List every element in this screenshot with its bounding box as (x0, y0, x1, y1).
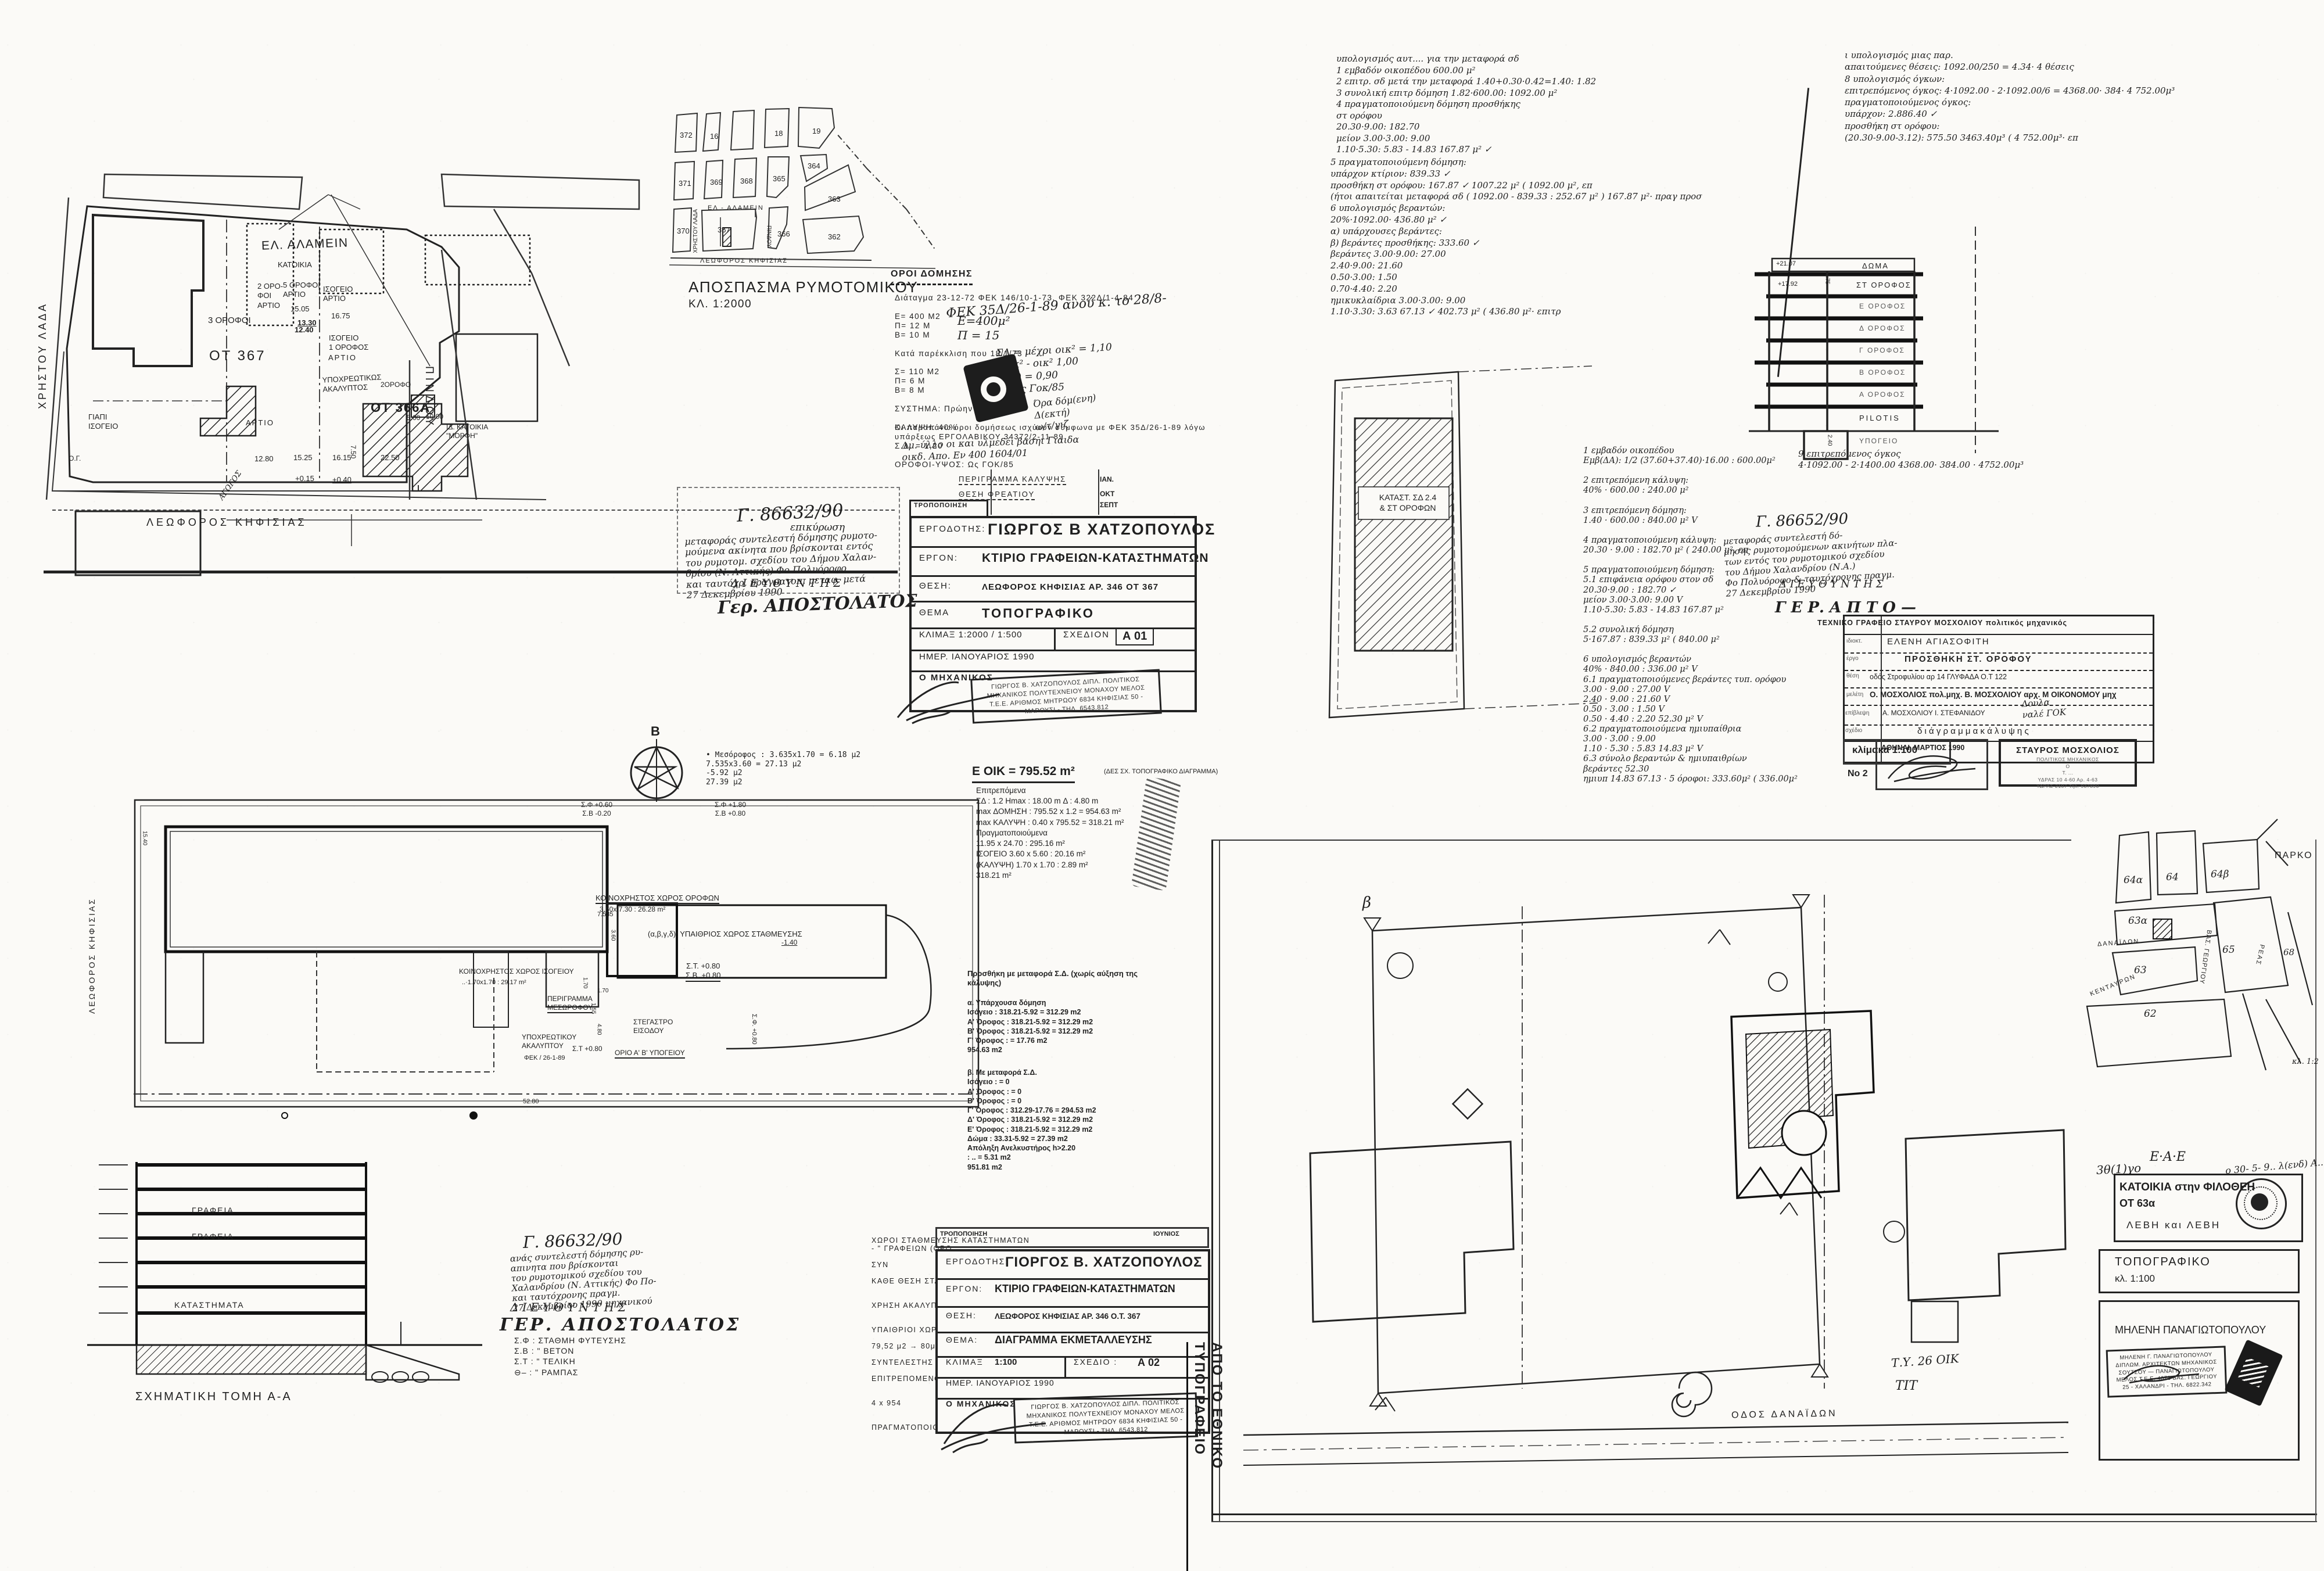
mos-table-r1: ΤΕΧΝΙΚΟ ΓΡΑΦΕΙΟ ΣΤΑΥΡΟΥ ΜΟΣΧΟΛΙΟΥ πολιτι… (1817, 619, 2067, 628)
a02-dim7535: 7.535 (597, 911, 614, 919)
a02-ergon-value: ΚΤΙΡΙΟ ΓΡΑΦΕΙΩΝ-ΚΑΤΑΣΤΗΜΑΤΩΝ (995, 1282, 1175, 1296)
keymap-62: 62 (2144, 1008, 2157, 1020)
a02-dim170b: 1.70 (597, 988, 608, 995)
permit-ref-mos: Γ. 86652/90 (1755, 510, 1848, 532)
street-el-alamein-label: ΕΛ. ΑΛΑΜΕΙΝ (261, 235, 349, 253)
elev-basement: ΥΠΟΓΕΙΟ (1859, 437, 1898, 446)
a02-sf3: Σ.Φ. +0.80 (749, 1014, 758, 1045)
mos-signature (1882, 752, 1981, 784)
rymo-street-kifisias: ΛΕΩΦΟΡΟΣ ΚΗΦΙΣΙΑΣ (700, 257, 788, 266)
mini-r3: ΤΡΟΠΟΠΟΙΗΣΗ (914, 502, 967, 510)
filothei-note-tit: ΤΙΤ (1895, 1378, 1917, 1394)
a02-street-left-label: ΛΕΩΦΟΡΟΣ ΚΗΦΙΣΙΑΣ (87, 898, 98, 1014)
a01-sxedion-label: ΣΧΕΔΙΟΝ (1063, 630, 1110, 641)
filothei-plan-drawing (1220, 842, 2092, 1522)
official-seal-core (2251, 1193, 2268, 1211)
elev-h-240: 2.40 (1826, 435, 1833, 446)
mos-table-r3: ΠΡΟΣΘΗΚΗ ΣΤ. ΟΡΟΦΟΥ (1905, 654, 2032, 665)
rymo-street-alamein: ΕΛ - ΑΛΑΜΕΙΝ (708, 205, 764, 213)
mos-table-k5: μελέτη (1846, 691, 1863, 699)
elev-f4: Δ ΟΡΟΦΟΣ (1859, 324, 1906, 333)
a01-thesi-value: ΛΕΩΦΟΡΟΣ ΚΗΦΙΣΙΑΣ ΑΡ. 346 ΟΤ 367 (982, 582, 1159, 593)
bldg-isogeio-1orofos-label: ΙΣΟΓΕΙΟ 1 ΟΡΟΦΟΣ (329, 333, 368, 353)
street-ladas-label: ΧΡΗΣΤΟΥ ΛΑΔΑ (36, 302, 49, 409)
rymo-scale: ΚΛ. 1:2000 (688, 297, 752, 311)
permit-frame-a01 (677, 487, 900, 594)
permit-role-a02: Δ Ι Ε Υ Θ Υ Ν Τ Η Σ (510, 1300, 626, 1315)
a02-perigramma: ΠΕΡΙΓΡΑΜΜΑ ΜΕΣΩΡΟΦΟΥ (547, 995, 593, 1013)
rymo-372: 372 (680, 131, 693, 140)
elev-mark-1792: +17.92 (1778, 281, 1798, 289)
a02-thesi-label: ΘΕΣΗ: (946, 1311, 977, 1321)
elev-h-275: 2.75 (1823, 273, 1831, 284)
eoik-block4: β. Με μεταφορά Σ.Δ. Ισόγειο : = 0 Α' Όρο… (967, 1068, 1096, 1172)
a02-mini-d1: ΙΟΥΝΙΟΣ (1153, 1231, 1179, 1239)
mos-table-r5: Ο. ΜΟΣΧΟΛΙΟΣ πολ.μηχ. Β. ΜΟΣΧΟΛΙΟΥ αρχ. … (1870, 690, 2117, 700)
a02-dim170a: 1.70 (581, 977, 589, 988)
eoik-heading: Ε ΟΙΚ = 795.52 m² (972, 764, 1075, 783)
keymap-68: 68 (2283, 947, 2294, 958)
oroi-title: ΟΡΟΙ ΔΟΜΗΣΗΣ (891, 268, 973, 285)
mesorofos-note: • Μεσόροφος : 3.635x1.70 = 6.18 μ2 7.535… (706, 751, 860, 787)
mos-table-hw6: Δουλα ναλέ ΓΟΚ (2021, 695, 2067, 720)
a02-orio: ΟΡΙΟ Α' Β' ΥΠΟΓΕΙΟΥ (615, 1049, 685, 1059)
moscholios-stamp-name: ΣΤΑΥΡΟΣ ΜΟΣΧΟΛΙΟΣ (2007, 745, 2129, 756)
a02-dim360: 3.60 (609, 930, 616, 941)
rymo-street-pindou: ΠΙΝΔΟΥ (765, 225, 772, 248)
bldg-giapi-label: ΓΙΑΠΙ ΙΣΟΓΕΙΟ (88, 413, 118, 432)
a01-thesi-label: ΘΕΣΗ: (919, 581, 952, 592)
a02-sxedio-value: Α 02 (1138, 1356, 1160, 1369)
oroi-hw-e400: Ε=400μ² Π = 15 (957, 314, 1010, 343)
a02-sf2: Σ.Φ +1.80 Σ.Β +0.80 (715, 801, 746, 818)
dim-750: 7.50 (349, 445, 357, 458)
og-label: Ο.Γ. (69, 454, 81, 463)
a02-section-drawing (87, 1147, 482, 1397)
rymo-364: 364 (808, 162, 820, 171)
compass-rose (621, 733, 690, 803)
rymo-16: 16 (710, 132, 718, 141)
fil-drawing-type: ΤΟΠΟΓΡΑΦΙΚΟ (2115, 1255, 2211, 1269)
elev-f3: Γ ΟΡΟΦΟΣ (1859, 346, 1905, 355)
rymo-368: 368 (740, 177, 753, 186)
fil-title: ΚΑΤΟΙΚΙΑ στην ΦΙΛΟΘΕΗ (2119, 1181, 2255, 1195)
dim-1675: 16.75 (331, 311, 350, 321)
bldg-2orofo-label: 2ΟΡΟΦΟ (381, 381, 411, 389)
rymo-19: 19 (812, 127, 820, 136)
oroi-hw-ora: Όρα δόμ(ενη) Δ(εκτή) ω/τ/γιζ (1032, 392, 1099, 433)
mini-d1: ΙΑΝ. (1100, 475, 1114, 484)
mos-calc-top2: 5 πραγματοποιούμενη δόμηση: υπάρχον κτίρ… (1330, 157, 1702, 318)
keymap-64b: 64β (2211, 869, 2229, 881)
section-floor-grafeia1: ΓΡΑΦΕΙΑ (192, 1206, 234, 1216)
a02-ergodotis-value: ΓΙΟΡΓΟΣ Β. ΧΑΤΖΟΠΟΥΛΟΣ (1005, 1254, 1203, 1271)
lvl-040: +0.40 (332, 475, 352, 485)
keymap-65: 65 (2222, 944, 2235, 956)
a02-signature (938, 1391, 1049, 1455)
mos-table-k7: σχέδιο (1845, 727, 1862, 735)
rymo-366: 366 (777, 229, 790, 239)
dim-500: 5.00 (407, 414, 420, 422)
bldg-2orofoi-label: 2 ΟΡΟ- ΦΟΙ ΑΡΤΙΟ (257, 282, 283, 310)
a02-st080: Σ.Τ +0.80 (572, 1045, 602, 1053)
a02-klimax-value: 1:100 (995, 1357, 1017, 1368)
rymo-367: 367 (718, 225, 730, 235)
filothei-street-label: ΟΔΟΣ ΔΑΝΑΪΔΩΝ (1731, 1408, 1838, 1421)
keymap-64a: 64α (2124, 874, 2143, 887)
keymap-63a: 63α (2128, 915, 2147, 927)
architect-stamp-signature (2121, 1362, 2202, 1386)
a01-klimax-label: ΚΛΙΜΑΞ 1:2000 / 1:500 (919, 630, 1023, 641)
a02-thema-label: ΘΕΜΑ: (946, 1335, 978, 1346)
dim-1000: 10.00 (426, 413, 443, 421)
a02-stegastro: ΣΤΕΓΑΣΤΡΟ ΕΙΣΟΔΟΥ (633, 1018, 673, 1035)
elev-f1: Α ΟΡΟΦΟΣ (1859, 390, 1906, 399)
street-kifisias-label: ΛΕΩΦΟΡΟΣ ΚΗΦΙΣΙΑΣ (146, 516, 307, 529)
mos-table-r6: Α. ΜΟΣΧΟΛΙΟΥ Ι. ΣΤΕΦΑΝΙΔΟΥ (1882, 709, 1985, 718)
mos-date: ΑΘΗΝΑΙ, ΜΑΡΤΙΟΣ 1990 (1881, 744, 1964, 753)
eoik-heading-note: (ΔΕΣ ΣΧ. ΤΟΠΟΓΡΑΦΙΚΟ ΔΙΑΓΡΑΜΜΑ) (1104, 768, 1218, 776)
bldg-katoikia-label: ΚΑΤΟΙΚΙΑ (278, 260, 312, 270)
section-floor-grafeia2: ΓΡΑΦΕΙΑ (192, 1232, 234, 1242)
dim-1240: 12.40 (295, 325, 314, 335)
bldg-isogeio-artio-label: ΙΣΟΓΕΙΟ ΑΡΤΙΟ (323, 285, 353, 304)
mos-calc-mid: 1 εμβαδόν οικοπέδου Εμβ(ΔΑ): 1/2 (37.60+… (1583, 446, 1798, 784)
a01-ergon-value: ΚΤΙΡΙΟ ΓΡΑΦΕΙΩΝ-ΚΑΤΑΣΤΗΜΑΤΩΝ (982, 551, 1209, 566)
keymap-scale: κλ. 1:2 (2292, 1057, 2319, 1067)
rymo-365: 365 (773, 174, 786, 184)
a01-thema-label: ΘΕΜΑ (919, 608, 949, 619)
rymo-369: 369 (710, 178, 723, 187)
a02-ergodotis-label: ΕΡΓΟΔΟΤΗΣ: (946, 1257, 1009, 1267)
filothei-marker-b: β (1362, 894, 1371, 913)
a02-mini-r1: ΤΡΟΠΟΠΟΙΗΣΗ (940, 1231, 987, 1239)
eoik-block2: Προσθήκη με μεταφορά Σ.Δ. (χωρίς αύξηση … (967, 969, 1138, 988)
a02-koino-orofon: ΚΟΙΝΟΧΡΗΣΤΟΣ ΧΩΡΟΣ ΟΡΟΦΩΝ (596, 894, 719, 904)
a02-ypaithrios: (α,β,γ,δ): ΥΠΑΙΘΡΙΟΣ ΧΩΡΟΣ ΣΤΑΘΜΕΥΣΗΣ (648, 930, 802, 939)
block-ot367-label: ΟΤ 367 (209, 347, 266, 365)
fil-block: ΟΤ 63α (2119, 1197, 2155, 1210)
mos-plan-label: ΚΑΤΑΣΤ. ΣΔ 2.4 & ΣΤ ΟΡΟΦΩΝ (1364, 493, 1451, 513)
a02-sxedio-label: ΣΧΕΔΙΟ : (1074, 1357, 1117, 1368)
mos-table-k3: έργο (1846, 655, 1859, 663)
fil-architect: ΜΗΛΕΝΗ ΠΑΝΑΓΙΩΤΟΠΟΥΛΟΥ (2115, 1323, 2266, 1337)
rymo-371: 371 (679, 179, 691, 188)
a01-sxedion-value: Α 01 (1116, 627, 1154, 645)
a02-imer-label: ΗΜΕΡ. ΙΑΝΟΥΑΡΙΟΣ 1990 (946, 1378, 1055, 1389)
mos-calc-top: υπολογισμός αυτ.... για την μεταφορά σδ … (1336, 53, 1596, 156)
a01-ergon-label: ΕΡΓΟΝ: (919, 553, 958, 564)
bldg-artio-label: ΑΡΤΙΟ (328, 353, 357, 363)
ethniko-typografeio-vertical: ΑΠΟ ΤΟ ΕΘΝΙΚΟ ΤΥΠΟΓΡΑΦΕΙΟ (1186, 1342, 1225, 1571)
dim-1280: 12.80 (254, 454, 274, 464)
a02-dim155: 1.55 (589, 1003, 597, 1014)
a02-st-sb: Σ.Τ. +0.80 Σ.Β. +0.80 (686, 962, 720, 982)
a02-legend: Σ.Φ : ΣΤΑΘΜΗ ΦΥΤΕΥΣΗΣ Σ.Β : " ΒΕΤΟΝ Σ.Τ … (514, 1335, 626, 1378)
block-ot366a-label: ΟΤ 366Α (371, 400, 431, 416)
mos-table-k6: επίβλεψη (1845, 710, 1869, 718)
a02-koino-isog2: ..·1.70x1.70 : 29.17 m² (462, 979, 526, 987)
bldg-5orofoi-label: 5 ΟΡΟΦΟΙ ΑΡΤΙΟ (283, 281, 320, 300)
compass-north-label: B (651, 723, 660, 740)
a02-ypoxr: ΥΠΟΧΡΕΩΤΙΚΟΥ ΑΚΑΛΥΠΤΟΥ (522, 1033, 576, 1050)
permit-role-mos: Δ Ι Ε Υ Θ Υ Ν Τ Η Σ (1779, 578, 1883, 591)
section-title: ΣΧΗΜΑΤΙΚΗ ΤΟΜΗ Α-Α (135, 1390, 292, 1404)
section-floor-katastimata: ΚΑΤΑΣΤΗΜΑΤΑ (174, 1300, 245, 1311)
filothei-keymap (2010, 808, 2318, 1075)
fil-hw-eae: Ε·Α·Ε (2150, 1149, 2186, 1165)
mini-d3: ΣΕΠΤ (1100, 501, 1118, 510)
a02-klimax-label: ΚΛΙΜΑΞ (946, 1357, 984, 1368)
elev-f6: ΣΤ ΟΡΟΦΟΣ (1856, 281, 1911, 290)
rymo-362: 362 (828, 232, 841, 242)
mos-calc-right: ι υπολογισμός μιας παρ. απαιτούμενες θέσ… (1845, 49, 2175, 144)
moscholios-stamp-info: ΠΟΛΙΤΙΚΟΣ ΜΗΧΑΝΙΚΟΣ Ο Τ. ... ΥΔΡΑΣ 10 4-… (2007, 756, 2129, 790)
scan-blemish (1131, 777, 1181, 891)
id-katoikia-morfi-label: ΙΔ. ΚΑΤΟΙΚΙΑ "ΜΟΡΦΗ" (446, 423, 488, 440)
municipality-stamp-core (987, 382, 1000, 396)
a02-ergon-label: ΕΡΓΟΝ: (946, 1284, 982, 1294)
elev-pilotis: PILOTIS (1859, 414, 1900, 423)
dim-2250: 22.50 (381, 453, 400, 462)
rymotomiko-map (662, 93, 941, 285)
a01-thema-value: ΤΟΠΟΓΡΑΦΙΚΟ (982, 605, 1095, 622)
a02-dim140: -1.40 (781, 938, 797, 947)
fil-owners: ΛΕΒΗ και ΛΕΒΗ (2126, 1219, 2221, 1231)
eoik-block3: α. Υπάρχουσα δόμηση Ισόγειο : 318.21-5.9… (967, 998, 1093, 1055)
mini-r2: ΘΕΣΗ ΦΡΕΑΤΙΟΥ (959, 490, 1035, 500)
eoik-block1: Επιτρεπόμενα ΣΔ : 1.2 Hmax : 18.00 m Δ :… (976, 785, 1124, 881)
lvl-015: +0.15 (295, 474, 314, 483)
a02-fek: ΦΕΚ / 26-1-89 (524, 1054, 565, 1063)
scanned-drawing-canvas: ΕΛ. ΑΛΑΜΕΙΝ ΠΙΝΔΟΥ ΧΡΗΣΤΟΥ ΛΑΔΑ ΟΤ 367 Ο… (0, 0, 2324, 1571)
a01-ergodotis-label: ΕΡΓΟΔΟΤΗΣ: (919, 524, 985, 535)
mos-table-r4: οδός Στροφυλίου αρ 14 ΓΛΥΦΑΔΑ Ο.Τ 122 (1870, 673, 2007, 682)
a01-signature (895, 668, 1011, 726)
a02-dim5280: 52.80 (523, 1098, 539, 1106)
mos-siteplan (1319, 349, 1609, 732)
mos-table-k4: θέση (1846, 673, 1859, 680)
dim-1505: 15.05 (290, 304, 310, 314)
mos-no2: Νο 2 (1848, 768, 1868, 780)
a02-thema-value: ΔΙΑΓΡΑΜΜΑ ΕΚΜΕΤΑΛΛΕΥΣΗΣ (995, 1333, 1152, 1347)
mini-d2: ΟΚΤ (1100, 490, 1114, 498)
mini-r1: ΠΕΡΙΓΡΑΜΜΑ ΚΑΛΥΨΗΣ (959, 475, 1066, 485)
a02-thesi-value: ΛΕΩΦΟΡΟΣ ΚΗΦΙΣΙΑΣ ΑΡ. 346 Ο.Τ. 367 (995, 1312, 1141, 1322)
mos-table-k2: ιδιοκτ. (1846, 638, 1862, 645)
keymap-64: 64 (2166, 871, 2179, 884)
filothei-border-top (1211, 840, 2071, 841)
keymap-63: 63 (2134, 964, 2147, 977)
elev-f2: Β ΟΡΟΦΟΣ (1859, 368, 1906, 377)
dim-1525: 15.25 (293, 453, 313, 462)
a02-koino-isog: ΚΟΙΝΟΧΡΗΣΤΟΣ ΧΩΡΟΣ ΙΣΟΓΕΙΟΥ (459, 967, 574, 976)
a02-dim1540: 15.40 (141, 831, 148, 845)
fil-scale: κλ. 1:100 (2115, 1272, 2155, 1285)
a02-sf1: Σ.Φ +0.60 Σ.Β -0.20 (581, 801, 612, 818)
rymo-caption: ΑΠΟΣΠΑΣΜΑ ΡΥΜΟΤΟΜΙΚΟΥ (688, 278, 918, 297)
a02-dim480: 4.80 (595, 1024, 602, 1035)
elev-doma: ΔΩΜΑ (1862, 261, 1889, 271)
a01-ergodotis-value: ΓΙΩΡΓΟΣ Β ΧΑΤΖΟΠΟΥΛΟΣ (988, 520, 1215, 540)
ypoxreotikos-akalyptos-label: ΥΠΟΧΡΕΩΤΙΚΩΣ ΑΚΑΛΥΠΤΟΣ (322, 372, 382, 394)
bldg-3orofoi-label: 3 ΟΡΟΦΟΙ (208, 315, 251, 327)
mos-table-r7: δ ι ά γ ρ α μ μ α κ ά λ υ ψ η ς (1917, 726, 2029, 737)
rymo-370: 370 (677, 227, 690, 236)
mos-table-r2: ΕΛΕΝΗ ΑΓΙΑΣΟΦΙΤΗ (1887, 637, 1990, 648)
rymo-363: 363 (828, 195, 841, 204)
elev-mark-2107: +21.07 (1776, 260, 1796, 268)
keymap-parko: ΠΑΡΚΟ (2275, 850, 2313, 862)
a01-imer-label: ΗΜΕΡ. ΙΑΝΟΥΑΡΙΟΣ 1990 (919, 652, 1035, 663)
bldg-artio2-label: ΑΡΤΙΟ (246, 418, 274, 428)
moscholios-stamp: ΣΤΑΥΡΟΣ ΜΟΣΧΟΛΙΟΣ ΠΟΛΙΤΙΚΟΣ ΜΗΧΑΝΙΚΟΣ Ο … (1999, 739, 2137, 787)
permit-sig-a02: ΓΕΡ. ΑΠΟΣΤΟΛΑΤΟΣ (500, 1314, 741, 1336)
rymo-street-ladas: ΧΡΗΣΤΟΥ ΛΑΔΑ (693, 209, 700, 253)
rymo-18: 18 (774, 129, 783, 138)
a02-plan-drawing (134, 799, 982, 1110)
elev-f5: Ε ΟΡΟΦΟΣ (1859, 302, 1906, 311)
